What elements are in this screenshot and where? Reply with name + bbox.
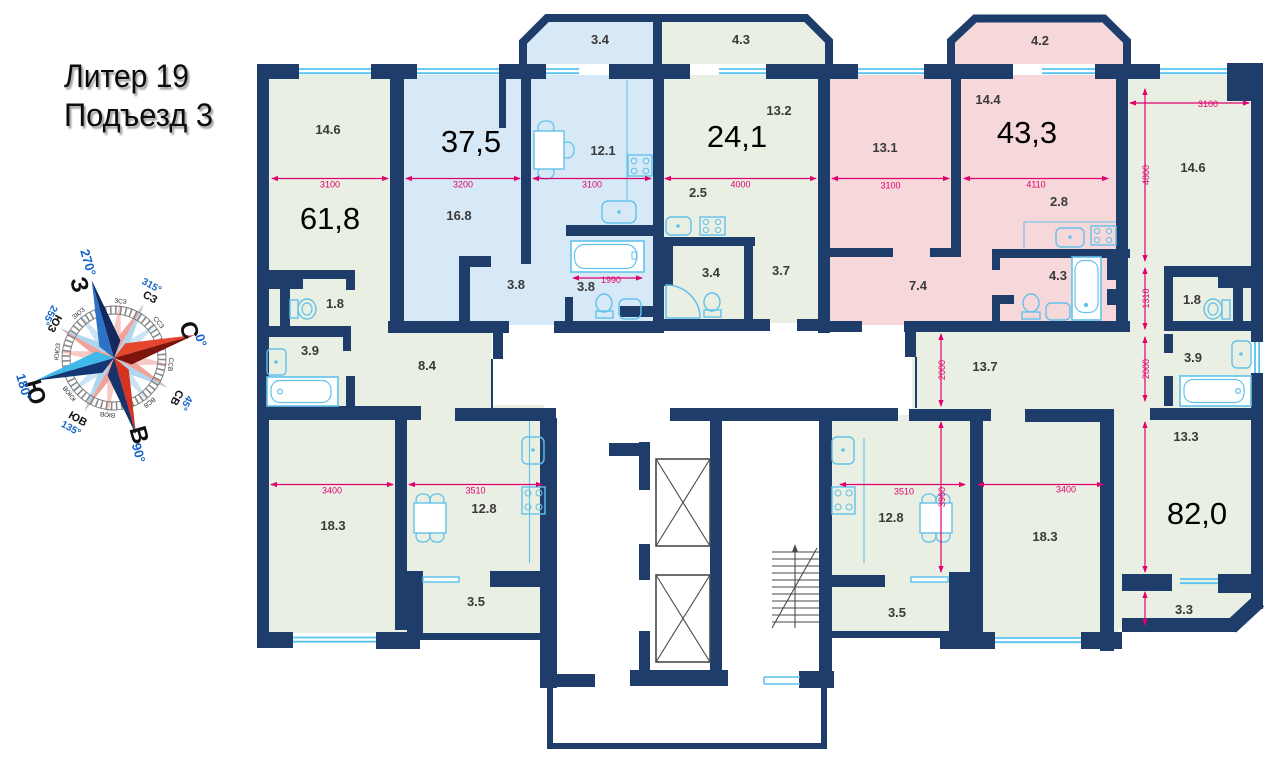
svg-text:82,0: 82,0 (1167, 496, 1227, 531)
svg-text:3.4: 3.4 (591, 32, 610, 47)
svg-text:12.8: 12.8 (878, 510, 903, 525)
svg-text:4000: 4000 (730, 180, 750, 190)
svg-text:2.5: 2.5 (689, 185, 707, 200)
svg-text:3.5: 3.5 (467, 594, 485, 609)
svg-text:4110: 4110 (1026, 180, 1045, 190)
svg-text:18.3: 18.3 (320, 518, 345, 533)
svg-text:14.6: 14.6 (315, 122, 340, 137)
svg-text:3.9: 3.9 (1184, 350, 1202, 365)
svg-text:4.3: 4.3 (1049, 268, 1067, 283)
svg-text:24,1: 24,1 (707, 119, 767, 154)
svg-text:3.3: 3.3 (1175, 602, 1193, 617)
svg-text:4.3: 4.3 (732, 32, 750, 47)
svg-text:2000: 2000 (937, 360, 947, 380)
svg-text:12.8: 12.8 (471, 501, 496, 516)
svg-text:3.7: 3.7 (772, 263, 790, 278)
svg-text:3.5: 3.5 (888, 605, 906, 620)
svg-text:ЗСЗ: ЗСЗ (114, 298, 127, 306)
svg-text:3100: 3100 (582, 180, 602, 190)
svg-text:3.4: 3.4 (702, 265, 721, 280)
svg-text:3200: 3200 (453, 180, 473, 190)
svg-text:12.1: 12.1 (590, 143, 615, 158)
svg-text:13.1: 13.1 (872, 140, 897, 155)
svg-text:3100: 3100 (1198, 99, 1218, 109)
svg-text:Литер 19: Литер 19 (64, 58, 189, 94)
svg-text:3400: 3400 (1056, 485, 1076, 495)
svg-text:3960: 3960 (937, 487, 947, 507)
svg-text:3.8: 3.8 (507, 277, 525, 292)
svg-text:3100: 3100 (320, 180, 340, 190)
svg-text:7.4: 7.4 (909, 278, 928, 293)
svg-text:2000: 2000 (1141, 359, 1151, 379)
svg-text:1.8: 1.8 (326, 296, 344, 311)
svg-text:61,8: 61,8 (300, 201, 360, 236)
svg-text:2.8: 2.8 (1050, 194, 1068, 209)
svg-text:3.8: 3.8 (577, 279, 595, 294)
svg-text:13.7: 13.7 (972, 359, 997, 374)
svg-text:43,3: 43,3 (997, 115, 1057, 150)
svg-text:14.4: 14.4 (975, 92, 1001, 107)
svg-text:16.8: 16.8 (446, 208, 471, 223)
svg-text:4800: 4800 (1141, 165, 1151, 185)
svg-text:37,5: 37,5 (441, 124, 501, 159)
svg-text:4.2: 4.2 (1031, 33, 1049, 48)
svg-text:18.3: 18.3 (1032, 529, 1057, 544)
svg-text:13.2: 13.2 (766, 103, 791, 118)
svg-text:13.3: 13.3 (1173, 429, 1198, 444)
svg-text:3510: 3510 (894, 487, 914, 497)
svg-text:3100: 3100 (880, 181, 900, 191)
svg-text:3.9: 3.9 (301, 343, 319, 358)
svg-text:3510: 3510 (465, 486, 485, 496)
svg-text:1990: 1990 (601, 275, 621, 285)
svg-text:1.8: 1.8 (1183, 292, 1201, 307)
svg-text:1310: 1310 (1141, 288, 1151, 308)
svg-text:8.4: 8.4 (418, 358, 437, 373)
svg-text:14.6: 14.6 (1180, 160, 1205, 175)
svg-text:Подъезд 3: Подъезд 3 (64, 97, 213, 133)
svg-text:3400: 3400 (322, 486, 342, 496)
